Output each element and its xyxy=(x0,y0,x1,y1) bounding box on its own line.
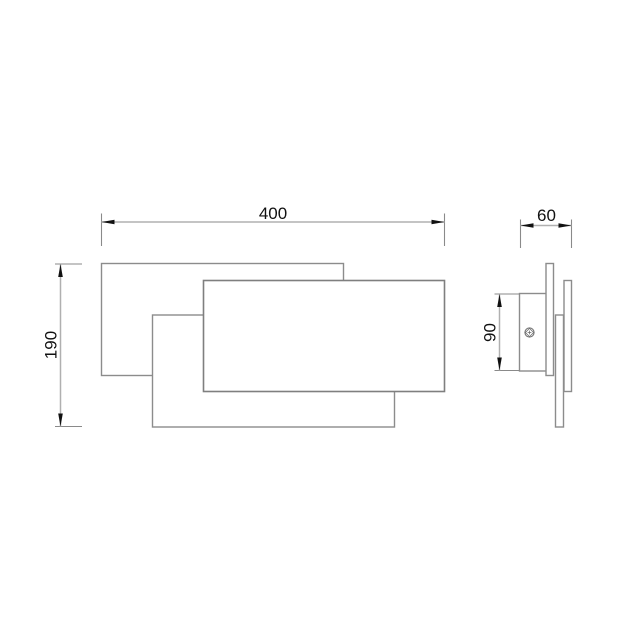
width-arrow-right-icon xyxy=(432,220,445,225)
plate-height-dim-value: 90 xyxy=(481,323,500,342)
front-view xyxy=(102,264,445,428)
plate-height-arrow-bottom-icon xyxy=(497,358,502,371)
side-view xyxy=(520,264,572,428)
height-arrow-top-icon xyxy=(58,264,63,277)
bottom-panel-edge-rect xyxy=(556,315,564,427)
depth-arrow-right-icon xyxy=(559,223,572,228)
drawing-canvas: 400 190 xyxy=(0,0,630,630)
front-panel-rect xyxy=(204,281,445,392)
plate-height-dimension: 90 xyxy=(481,294,521,371)
back-panel-edge-rect xyxy=(546,264,554,376)
depth-dimension: 60 xyxy=(521,206,572,248)
width-arrow-left-icon xyxy=(102,220,115,225)
height-dim-value: 190 xyxy=(42,331,61,359)
plate-height-arrow-top-icon xyxy=(497,294,502,307)
depth-dim-value: 60 xyxy=(537,206,556,225)
height-arrow-bottom-icon xyxy=(58,414,63,427)
front-panel-edge-rect xyxy=(564,281,572,392)
depth-arrow-left-icon xyxy=(521,223,534,228)
width-dim-value: 400 xyxy=(259,204,287,223)
wall-lamp-technical-drawing: 400 190 xyxy=(0,0,630,630)
height-dimension: 190 xyxy=(42,264,83,427)
width-dimension: 400 xyxy=(102,204,445,246)
